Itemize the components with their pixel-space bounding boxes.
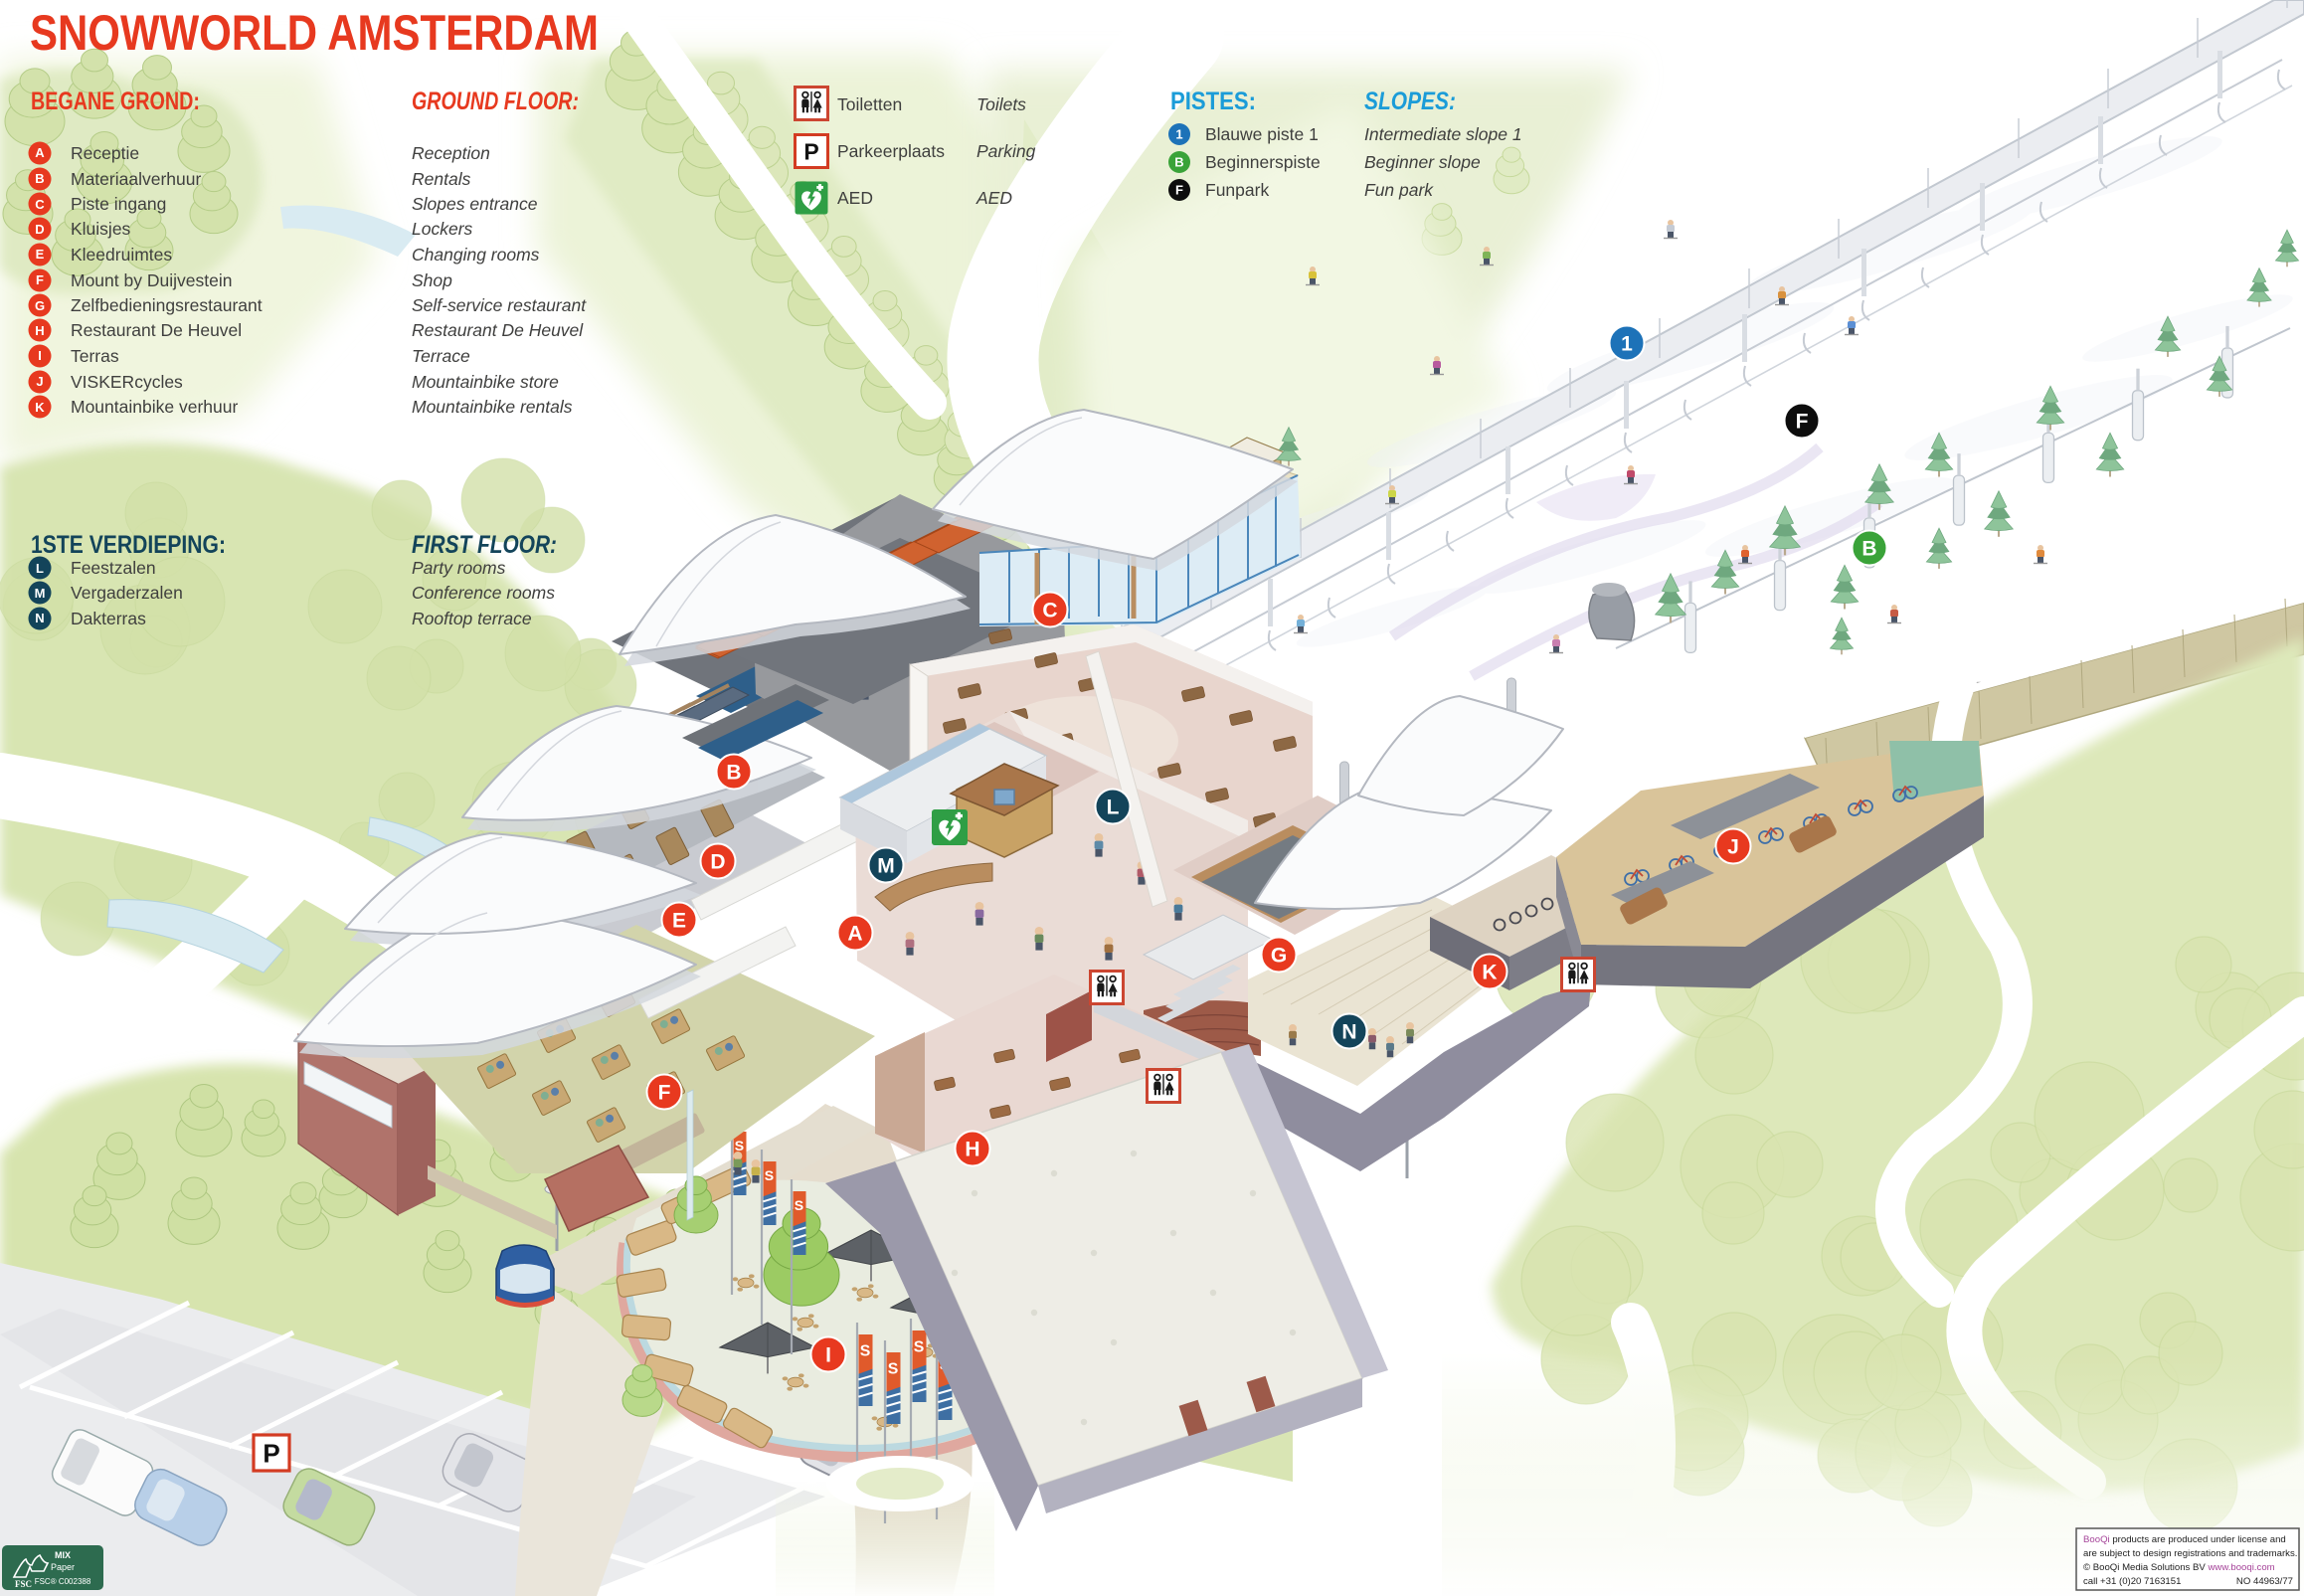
svg-text:Toiletten: Toiletten — [837, 94, 902, 114]
svg-text:F: F — [1796, 411, 1809, 434]
svg-text:Paper: Paper — [51, 1562, 75, 1572]
svg-text:J: J — [36, 374, 43, 389]
svg-text:MIX: MIX — [55, 1550, 71, 1560]
svg-text:Mountainbike store: Mountainbike store — [412, 372, 559, 392]
svg-text:Shop: Shop — [412, 270, 452, 290]
svg-text:Restaurant De Heuvel: Restaurant De Heuvel — [412, 320, 584, 340]
svg-text:Toilets: Toilets — [976, 94, 1026, 114]
svg-text:B: B — [1861, 538, 1876, 561]
svg-text:Rooftop terrace: Rooftop terrace — [412, 609, 532, 628]
svg-text:Feestzalen: Feestzalen — [71, 558, 156, 578]
svg-text:FSC® C002388: FSC® C002388 — [35, 1577, 91, 1586]
svg-text:S: S — [914, 1339, 925, 1356]
svg-text:B: B — [1174, 155, 1183, 170]
svg-text:B: B — [726, 762, 741, 785]
svg-text:S: S — [735, 1138, 744, 1153]
svg-text:Zelfbedieningsrestaurant: Zelfbedieningsrestaurant — [71, 295, 263, 315]
svg-text:G: G — [1271, 945, 1287, 968]
svg-text:BooQi products are produced un: BooQi products are produced under licens… — [2083, 1534, 2286, 1545]
svg-text:Changing rooms: Changing rooms — [412, 245, 540, 265]
svg-text:J: J — [1727, 836, 1739, 859]
svg-text:Conference rooms: Conference rooms — [412, 583, 555, 603]
svg-text:F: F — [1175, 183, 1183, 198]
svg-text:Parkeerplaats: Parkeerplaats — [837, 141, 945, 161]
svg-text:S: S — [888, 1361, 899, 1378]
svg-text:F: F — [658, 1082, 671, 1105]
svg-text:Mountainbike verhuur: Mountainbike verhuur — [71, 397, 238, 417]
svg-text:AED: AED — [975, 188, 1012, 208]
svg-text:Blauwe piste 1: Blauwe piste 1 — [1205, 124, 1319, 144]
svg-text:A: A — [847, 923, 862, 946]
svg-text:FSC: FSC — [15, 1579, 32, 1589]
svg-text:Restaurant De Heuvel: Restaurant De Heuvel — [71, 320, 242, 340]
svg-text:NO 44963/77: NO 44963/77 — [2236, 1576, 2293, 1587]
svg-text:L: L — [1107, 797, 1120, 819]
svg-text:1: 1 — [1175, 127, 1182, 142]
svg-text:K: K — [35, 400, 45, 415]
svg-text:Terrace: Terrace — [412, 346, 470, 366]
svg-text:are subject to design registra: are subject to design registrations and … — [2083, 1548, 2297, 1559]
svg-text:Vergaderzalen: Vergaderzalen — [71, 583, 183, 603]
svg-text:Funpark: Funpark — [1205, 180, 1269, 200]
svg-text:D: D — [35, 222, 44, 237]
svg-text:Terras: Terras — [71, 346, 119, 366]
svg-text:1STE VERDIEPING:: 1STE VERDIEPING: — [31, 531, 226, 559]
svg-text:I: I — [38, 348, 42, 363]
svg-text:F: F — [36, 272, 44, 287]
svg-text:Beginner slope: Beginner slope — [1364, 152, 1481, 172]
svg-text:PISTES:: PISTES: — [1170, 88, 1256, 115]
svg-text:Mount by Duijvestein: Mount by Duijvestein — [71, 270, 232, 290]
svg-text:C: C — [35, 197, 45, 212]
svg-text:S: S — [765, 1167, 774, 1183]
svg-text:S: S — [795, 1197, 803, 1213]
svg-text:Kluisjes: Kluisjes — [71, 219, 131, 239]
svg-text:Reception: Reception — [412, 143, 490, 163]
svg-text:G: G — [35, 298, 45, 313]
svg-text:FIRST FLOOR:: FIRST FLOOR: — [412, 531, 557, 559]
svg-text:S: S — [860, 1343, 871, 1360]
svg-text:AED: AED — [837, 188, 873, 208]
svg-text:D: D — [710, 851, 725, 874]
svg-text:L: L — [36, 561, 44, 576]
svg-text:Party rooms: Party rooms — [412, 558, 506, 578]
svg-text:K: K — [1482, 962, 1497, 984]
svg-text:P: P — [263, 1438, 279, 1468]
svg-text:SLOPES:: SLOPES: — [1364, 88, 1456, 115]
svg-text:Parking: Parking — [976, 141, 1036, 161]
svg-text:Rentals: Rentals — [412, 169, 471, 189]
svg-text:1: 1 — [1621, 333, 1633, 356]
svg-text:Kleedruimtes: Kleedruimtes — [71, 245, 172, 265]
svg-text:Materiaalverhuur: Materiaalverhuur — [71, 169, 201, 189]
svg-text:BEGANE GROND:: BEGANE GROND: — [31, 88, 200, 115]
svg-text:VISKERcycles: VISKERcycles — [71, 372, 183, 392]
svg-text:P: P — [803, 138, 818, 164]
svg-text:Lockers: Lockers — [412, 219, 473, 239]
svg-text:B: B — [35, 171, 44, 186]
svg-text:SNOWWORLD AMSTERDAM: SNOWWORLD AMSTERDAM — [30, 5, 599, 61]
svg-text:Piste ingang: Piste ingang — [71, 194, 166, 214]
svg-text:N: N — [35, 611, 44, 625]
svg-text:Intermediate slope 1: Intermediate slope 1 — [1364, 124, 1522, 144]
svg-text:call +31 (0)20 7163151: call +31 (0)20 7163151 — [2083, 1576, 2181, 1587]
svg-text:© BooQi Media Solutions BV ww: © BooQi Media Solutions BV www.booqi.com — [2083, 1562, 2275, 1573]
svg-text:GROUND FLOOR:: GROUND FLOOR: — [412, 88, 579, 115]
svg-text:Mountainbike rentals: Mountainbike rentals — [412, 397, 573, 417]
svg-text:H: H — [35, 323, 44, 338]
svg-text:Receptie: Receptie — [71, 143, 139, 163]
svg-text:A: A — [35, 145, 45, 160]
svg-text:Self-service restaurant: Self-service restaurant — [412, 295, 587, 315]
svg-text:I: I — [825, 1344, 831, 1367]
svg-text:C: C — [1042, 600, 1057, 622]
svg-text:Dakterras: Dakterras — [71, 609, 146, 628]
svg-text:M: M — [35, 586, 46, 601]
svg-text:H: H — [965, 1139, 979, 1161]
svg-text:Fun park: Fun park — [1364, 180, 1434, 200]
svg-text:M: M — [877, 855, 895, 878]
svg-text:N: N — [1341, 1021, 1356, 1044]
svg-text:E: E — [36, 247, 45, 262]
svg-text:Slopes entrance: Slopes entrance — [412, 194, 538, 214]
svg-text:E: E — [672, 910, 686, 933]
svg-text:Beginnerspiste: Beginnerspiste — [1205, 152, 1321, 172]
